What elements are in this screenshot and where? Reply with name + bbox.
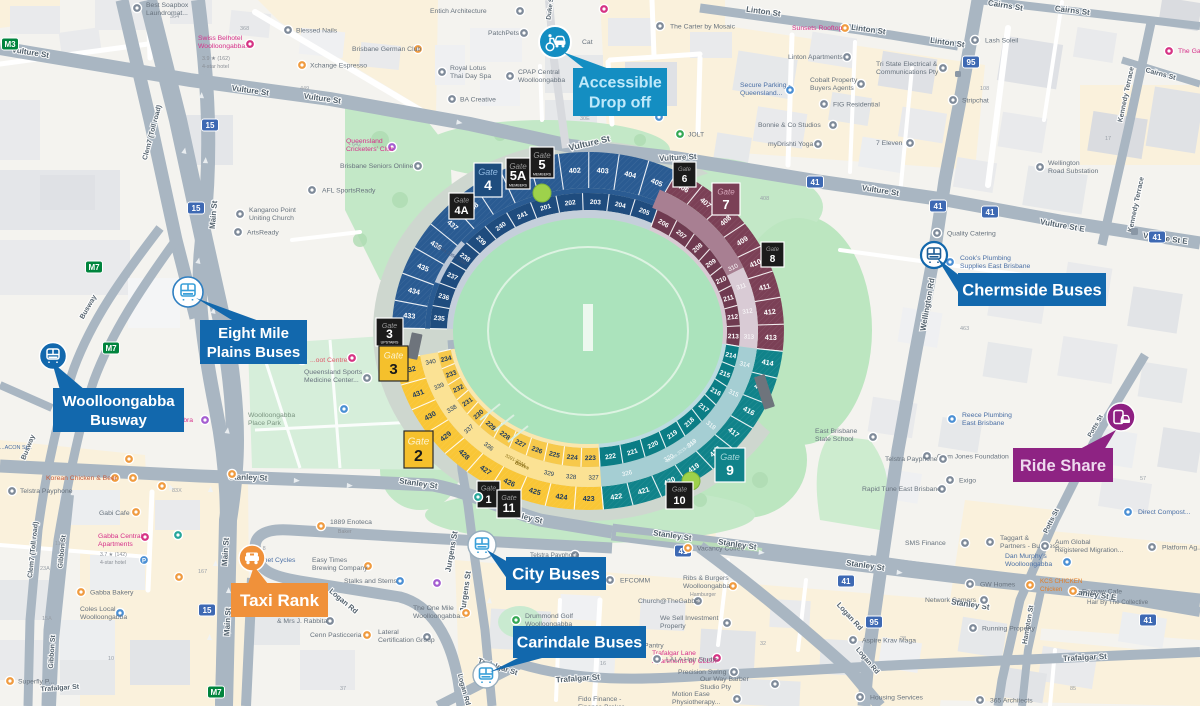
svg-text:85: 85 [1070, 686, 1076, 692]
svg-text:Gate: Gate [481, 486, 496, 493]
svg-text:Church@TheGabba: Church@TheGabba [638, 598, 699, 605]
svg-text:Gate: Gate [672, 487, 687, 494]
svg-text:State School: State School [815, 436, 854, 443]
svg-text:Entich Architecture: Entich Architecture [430, 8, 487, 15]
svg-text:11: 11 [503, 501, 516, 515]
svg-text:Plains Buses: Plains Buses [207, 344, 300, 361]
svg-text:Brisbane German Club: Brisbane German Club [352, 46, 421, 53]
svg-text:Apartments: Apartments [98, 541, 133, 548]
svg-text:ArtsReady: ArtsReady [247, 230, 279, 237]
svg-text:408: 408 [760, 196, 769, 202]
svg-text:312: 312 [742, 307, 754, 315]
svg-text:Housing Services: Housing Services [870, 695, 923, 702]
svg-text:167: 167 [198, 569, 207, 575]
svg-text:213: 213 [728, 333, 740, 340]
svg-text:M3: M3 [4, 40, 16, 49]
svg-text:Gabba Central: Gabba Central [98, 533, 143, 540]
svg-text:Running Property: Running Property [982, 626, 1035, 633]
svg-text:Vacancy Coffee: Vacancy Coffee [697, 546, 745, 553]
svg-text:16: 16 [600, 661, 606, 667]
svg-text:364: 364 [170, 14, 179, 20]
svg-text:Royal Lotus: Royal Lotus [450, 65, 486, 72]
svg-text:8: 8 [770, 254, 776, 265]
svg-text:M7: M7 [210, 688, 222, 697]
svg-text:202: 202 [564, 199, 576, 207]
svg-text:4-star hotel: 4-star hotel [100, 560, 126, 566]
svg-text:Supplies East Brisbane: Supplies East Brisbane [960, 263, 1030, 270]
svg-text:Blessed Nails: Blessed Nails [296, 28, 338, 35]
svg-text:LALA Hair Studio: LALA Hair Studio [666, 657, 718, 664]
svg-text:223: 223 [585, 455, 596, 462]
svg-text:The Carter by Mosaic: The Carter by Mosaic [670, 24, 736, 31]
svg-text:Network Gamers: Network Gamers [925, 597, 977, 604]
svg-text:Sunsets Rooftop: Sunsets Rooftop [792, 25, 842, 32]
svg-text:Woolloongabba: Woolloongabba [683, 583, 730, 590]
svg-text:Ride Share: Ride Share [1020, 457, 1106, 475]
svg-text:Cook’s Plumbing: Cook’s Plumbing [960, 255, 1011, 262]
svg-text:Cobalt Property: Cobalt Property [810, 77, 858, 84]
svg-text:Medicine Center...: Medicine Center... [304, 377, 359, 384]
svg-text:Chermside Buses: Chermside Buses [962, 281, 1101, 299]
svg-text:5A: 5A [510, 168, 527, 183]
svg-text:3: 3 [386, 327, 393, 341]
svg-text:Xchange Espresso: Xchange Espresso [310, 63, 367, 70]
svg-text:Wellington: Wellington [1048, 160, 1080, 167]
svg-text:422: 422 [610, 491, 623, 502]
svg-text:Coles Local: Coles Local [80, 606, 116, 613]
svg-text:P: P [142, 559, 146, 565]
svg-text:4: 4 [484, 177, 492, 193]
svg-text:Ribs & Burgers: Ribs & Burgers [683, 575, 729, 582]
svg-text:57: 57 [1140, 476, 1146, 482]
svg-text:Drop off: Drop off [589, 95, 652, 112]
svg-text:Stripchat: Stripchat [962, 98, 989, 105]
svg-text:402: 402 [569, 165, 582, 175]
svg-text:Superfly P...: Superfly P... [18, 679, 54, 686]
svg-text:Gate: Gate [478, 167, 498, 177]
svg-text:4A: 4A [454, 205, 468, 217]
svg-text:UPSTAIRS: UPSTAIRS [381, 341, 399, 345]
svg-text:1889 Enoteca: 1889 Enoteca [330, 519, 372, 526]
svg-text:...ACON St...: ...ACON St... [0, 445, 32, 451]
svg-text:368: 368 [240, 26, 249, 32]
svg-text:East Brisbane: East Brisbane [815, 428, 858, 435]
svg-text:BA Creative: BA Creative [460, 97, 496, 104]
svg-text:412: 412 [763, 307, 776, 317]
svg-text:11A: 11A [55, 541, 65, 547]
svg-text:203: 203 [590, 199, 602, 207]
svg-text:MEMBERS: MEMBERS [533, 173, 552, 177]
svg-text:Taxi Rank: Taxi Rank [240, 591, 320, 610]
svg-text:CPAP Central: CPAP Central [518, 69, 560, 76]
svg-text:15A: 15A [42, 616, 52, 622]
svg-text:Taggart &: Taggart & [1000, 535, 1030, 542]
svg-text:Gabi Cafe: Gabi Cafe [99, 510, 130, 517]
svg-text:449: 449 [300, 86, 309, 92]
svg-text:3: 3 [389, 361, 397, 378]
svg-text:...oot Centres: ...oot Centres [310, 357, 351, 364]
svg-text:23A: 23A [40, 566, 50, 572]
svg-text:Eight Mile: Eight Mile [218, 325, 289, 342]
svg-text:Queensland...: Queensland... [740, 90, 782, 97]
svg-text:Brisbane Seniors Online: Brisbane Seniors Online [340, 163, 414, 170]
svg-text:MEMBERS: MEMBERS [509, 184, 528, 188]
svg-text:Queensland Sports: Queensland Sports [304, 369, 363, 376]
svg-text:Buyers Agents: Buyers Agents [810, 85, 854, 92]
svg-text:Carindale Buses: Carindale Buses [517, 635, 642, 652]
svg-text:Best Soapbox: Best Soapbox [146, 2, 189, 9]
svg-text:Secure Parking -: Secure Parking - [740, 82, 791, 89]
svg-text:Tri State Electrical &: Tri State Electrical & [876, 61, 938, 68]
svg-text:EFCOMM: EFCOMM [620, 578, 651, 585]
svg-text:Place Park: Place Park [248, 420, 281, 427]
svg-text:Our Way Barber: Our Way Barber [700, 676, 750, 683]
svg-text:17: 17 [1105, 136, 1111, 142]
svg-text:Cenn Pasticceria: Cenn Pasticceria [310, 632, 362, 639]
svg-text:Gate: Gate [454, 197, 469, 204]
svg-text:41: 41 [811, 178, 820, 187]
svg-text:M7: M7 [88, 263, 100, 272]
svg-text:The One Mile: The One Mile [413, 605, 454, 612]
svg-text:Chicken: Chicken [1040, 586, 1063, 593]
svg-text:Woolloongabba: Woolloongabba [518, 77, 565, 84]
svg-text:Gate: Gate [766, 247, 780, 253]
svg-text:37: 37 [340, 686, 346, 692]
svg-text:463: 463 [960, 326, 969, 332]
svg-text:myDrishti Yoga: myDrishti Yoga [768, 141, 814, 148]
svg-text:Laundromat...: Laundromat... [146, 10, 188, 17]
svg-text:365 Architects: 365 Architects [990, 698, 1033, 705]
svg-text:5: 5 [538, 157, 545, 172]
svg-text:642: 642 [352, 142, 361, 148]
svg-text:30E: 30E [580, 116, 590, 122]
svg-text:Linton Apartments: Linton Apartments [788, 54, 843, 61]
svg-text:Motion Ease: Motion Ease [672, 691, 710, 698]
svg-text:Rapid Tune East Brisbane: Rapid Tune East Brisbane [862, 486, 941, 493]
svg-text:Accessible: Accessible [578, 75, 662, 92]
svg-text:JOLT: JOLT [688, 132, 704, 139]
svg-text:3.9 ★ (162): 3.9 ★ (162) [202, 56, 230, 62]
svg-text:41: 41 [842, 577, 851, 586]
svg-text:95: 95 [870, 618, 879, 627]
svg-text:Woolloongabba: Woolloongabba [62, 393, 175, 410]
svg-text:1: 1 [485, 494, 491, 506]
svg-text:Communications Pty: Communications Pty [876, 69, 939, 76]
svg-text:M7: M7 [105, 344, 117, 353]
svg-text:41: 41 [1144, 616, 1153, 625]
svg-text:Woolloongabba...: Woolloongabba... [413, 613, 466, 620]
svg-text:Brewing Company: Brewing Company [312, 565, 368, 572]
svg-text:Platform Ag...: Platform Ag... [1162, 545, 1200, 552]
svg-text:Woolloongabba...: Woolloongabba... [198, 43, 251, 50]
svg-text:327: 327 [588, 474, 599, 481]
svg-text:Road Substation: Road Substation [1048, 168, 1098, 175]
svg-text:Drummond Golf: Drummond Golf [525, 613, 573, 620]
svg-text:413: 413 [765, 333, 777, 342]
svg-text:& Mrs J. Rabbita: & Mrs J. Rabbita [277, 618, 327, 625]
svg-text:SMS Finance: SMS Finance [905, 540, 946, 547]
svg-text:Certification Group: Certification Group [378, 637, 435, 644]
svg-text:Uniting Church: Uniting Church [249, 215, 294, 222]
svg-text:Hair By The Collective: Hair By The Collective [1087, 599, 1149, 606]
svg-text:10: 10 [108, 656, 114, 662]
svg-text:Gate: Gate [720, 452, 740, 462]
svg-text:Aum Global: Aum Global [1055, 539, 1091, 546]
svg-text:3.7 ★ (142): 3.7 ★ (142) [100, 552, 127, 558]
svg-text:Registered Migration...: Registered Migration... [1055, 547, 1123, 554]
svg-text:Hamburger: Hamburger [690, 592, 716, 598]
svg-text:41: 41 [1153, 233, 1162, 242]
svg-text:313: 313 [744, 333, 755, 340]
svg-text:28: 28 [900, 636, 906, 642]
svg-text:224: 224 [566, 454, 578, 462]
svg-text:Woolloongabba: Woolloongabba [1005, 561, 1052, 568]
svg-text:Woolloongabba: Woolloongabba [80, 614, 127, 621]
svg-text:9: 9 [726, 462, 734, 478]
svg-text:East Brisbane: East Brisbane [962, 420, 1005, 427]
svg-text:Easy Times: Easy Times [312, 557, 348, 564]
svg-text:Foxpaw Cafe: Foxpaw Cafe [1082, 589, 1122, 596]
svg-text:Swiss Belhotel: Swiss Belhotel [198, 35, 243, 42]
svg-text:6: 6 [682, 174, 688, 185]
svg-text:Busway: Busway [90, 412, 147, 429]
svg-text:Stalks and Stems: Stalks and Stems [344, 578, 397, 585]
svg-text:Quality Catering: Quality Catering [947, 231, 996, 238]
svg-text:Lash Soleil: Lash Soleil [985, 38, 1019, 45]
svg-text:PatchPets: PatchPets [488, 30, 520, 37]
svg-text:7 Eleven: 7 Eleven [876, 140, 903, 147]
svg-text:15: 15 [203, 606, 212, 615]
svg-text:Property: Property [660, 623, 686, 630]
svg-text:Thai Day Spa: Thai Day Spa [450, 73, 491, 80]
svg-text:GW Homes: GW Homes [980, 582, 1016, 589]
svg-text:Gate: Gate [678, 167, 692, 173]
svg-text:Studio Pty: Studio Pty [700, 684, 732, 691]
svg-text:235: 235 [433, 315, 445, 323]
svg-text:212: 212 [727, 313, 739, 321]
svg-text:Telstra Payphone: Telstra Payphone [885, 456, 938, 463]
svg-text:15: 15 [192, 204, 201, 213]
svg-text:Kangaroo Point: Kangaroo Point [249, 207, 296, 214]
svg-text:FIG Residential: FIG Residential [833, 102, 880, 109]
svg-text:7: 7 [722, 197, 729, 212]
svg-text:Telstra Payphone: Telstra Payphone [20, 488, 73, 495]
svg-text:Gate: Gate [384, 351, 404, 361]
svg-text:Lateral: Lateral [378, 629, 399, 636]
svg-text:We Sell Investment: We Sell Investment [660, 615, 719, 622]
svg-text:Bonnie & Co Studios: Bonnie & Co Studios [758, 122, 821, 129]
svg-text:Reece Plumbing: Reece Plumbing [962, 412, 1012, 419]
svg-text:403: 403 [596, 165, 609, 175]
svg-text:32: 32 [760, 641, 766, 647]
svg-text:328: 328 [566, 473, 578, 481]
svg-text:Cat: Cat [582, 39, 593, 46]
svg-text:Dan Murphy’s: Dan Murphy’s [1005, 553, 1047, 560]
svg-text:Korean Chicken & Beer: Korean Chicken & Beer [46, 475, 118, 482]
svg-text:10: 10 [673, 495, 685, 507]
svg-text:Direct Compost...: Direct Compost... [1138, 509, 1191, 516]
svg-text:Woolloongabba: Woolloongabba [248, 412, 295, 419]
svg-text:433: 433 [403, 311, 416, 321]
svg-text:Aspire Krav Maga: Aspire Krav Maga [862, 638, 916, 645]
svg-text:41: 41 [934, 202, 943, 211]
svg-text:4-star hotel: 4-star hotel [202, 64, 229, 70]
svg-text:KCS CHICKEN: KCS CHICKEN [1040, 578, 1082, 585]
svg-text:108: 108 [980, 86, 989, 92]
svg-text:Gate: Gate [408, 436, 430, 447]
svg-text:Exigo: Exigo [959, 478, 976, 485]
svg-text:2: 2 [414, 448, 423, 465]
svg-text:95: 95 [967, 58, 976, 67]
svg-text:83X: 83X [172, 488, 182, 494]
svg-text:Baker: Baker [338, 529, 352, 535]
svg-text:Precision Swing: Precision Swing [678, 669, 727, 676]
svg-text:City Buses: City Buses [512, 565, 600, 584]
svg-text:424: 424 [555, 491, 568, 502]
svg-text:AFL SportsReady: AFL SportsReady [322, 188, 376, 195]
svg-text:Gate: Gate [717, 188, 735, 197]
svg-text:Physiotherapy...: Physiotherapy... [672, 699, 720, 706]
svg-text:Fido Finance -: Fido Finance - [578, 696, 621, 703]
svg-text:423: 423 [583, 494, 595, 503]
svg-text:15: 15 [206, 121, 215, 130]
svg-text:The Gab...: The Gab... [1178, 48, 1200, 55]
svg-text:Gabba Bakery: Gabba Bakery [90, 590, 134, 597]
svg-text:41: 41 [986, 208, 995, 217]
